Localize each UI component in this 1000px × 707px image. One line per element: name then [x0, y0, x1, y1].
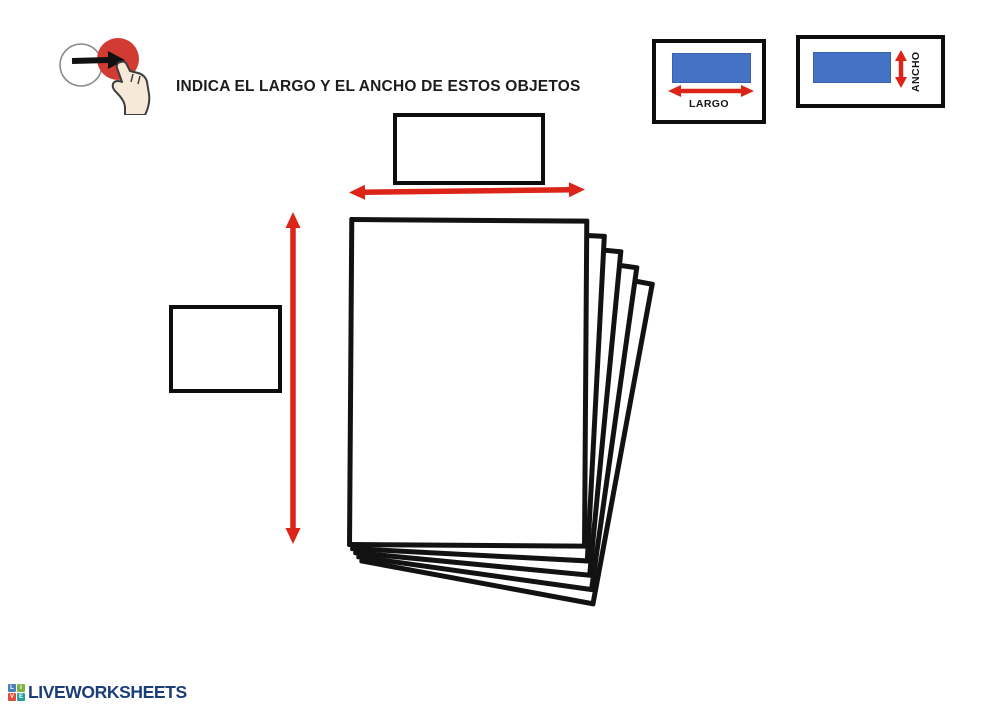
logo-tile: E: [17, 693, 25, 701]
paper-sheet-top: [347, 217, 589, 549]
legend-largo-box: LARGO: [652, 39, 766, 124]
logo-tiles-icon: L I V E: [8, 684, 25, 701]
answer-input-top[interactable]: [393, 113, 545, 185]
point-and-press-icon: [52, 30, 157, 115]
legend-largo-label: LARGO: [656, 98, 762, 110]
legend-ancho-box: ANCHO: [796, 35, 945, 108]
brand-name: LIVEWORKSHEETS: [28, 682, 187, 703]
logo-tile: V: [8, 693, 16, 701]
horizontal-double-arrow-icon: [668, 84, 754, 98]
worksheet-page: INDICA EL LARGO Y EL ANCHO DE ESTOS OBJE…: [0, 0, 1000, 707]
logo-tile: I: [17, 684, 25, 692]
instruction-title: INDICA EL LARGO Y EL ANCHO DE ESTOS OBJE…: [176, 78, 581, 96]
blue-rectangle-swatch: [672, 53, 751, 83]
liveworksheets-logo: L I V E LIVEWORKSHEETS: [8, 682, 187, 703]
blue-rectangle-swatch: [813, 52, 891, 83]
answer-input-left[interactable]: [169, 305, 282, 393]
logo-tile: L: [8, 684, 16, 692]
legend-ancho-label: ANCHO: [904, 39, 928, 104]
outline-circle: [60, 44, 102, 86]
vertical-dimension-arrow: [284, 211, 302, 545]
